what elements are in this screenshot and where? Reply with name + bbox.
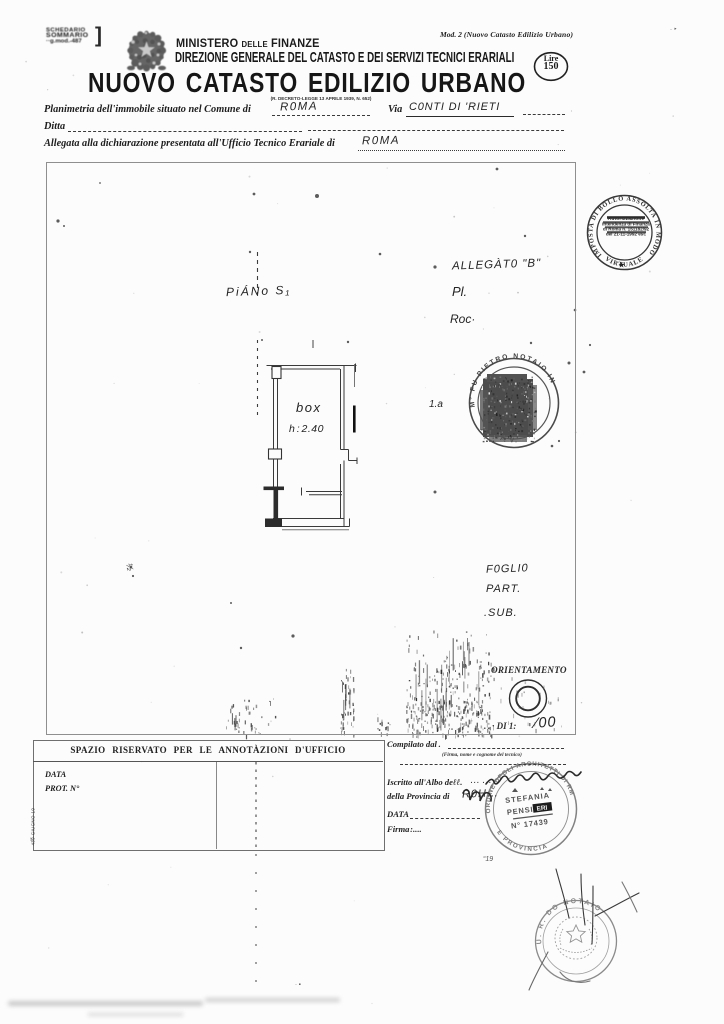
svg-text:PENSI: PENSI <box>506 805 533 817</box>
svg-text:STEFANIA: STEFANIA <box>505 791 551 805</box>
svg-text:ERI: ERI <box>536 804 548 812</box>
svg-text:★: ★ <box>618 261 625 270</box>
svg-text:E PROVINCIA: E PROVINCIA <box>495 829 549 853</box>
